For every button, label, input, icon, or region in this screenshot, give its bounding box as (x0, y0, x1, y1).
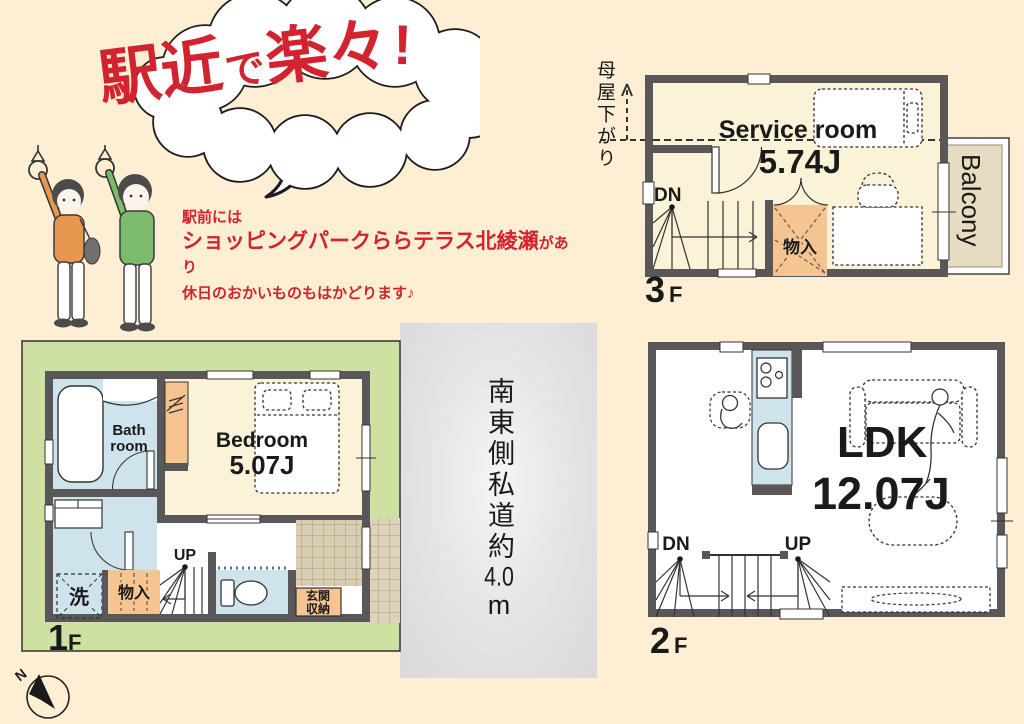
bedroom-closet (165, 382, 188, 471)
strap-handle-icon (99, 149, 111, 159)
floor-label-2f-suffix: F (674, 633, 687, 658)
entrance-storage-label-1: 玄関 (306, 588, 330, 603)
balcony-label: Balcony (956, 154, 986, 247)
bathtub (58, 386, 103, 482)
storage-wall (765, 200, 773, 277)
road-label: 南東側私道約4.0m (485, 377, 512, 624)
stair-wall (645, 145, 712, 153)
room-name-2f: LDK (837, 418, 928, 467)
storage-label-3f: 物入 (783, 237, 817, 257)
people-illustration (8, 145, 193, 345)
entrance-storage-label-2: 収納 (306, 601, 330, 616)
door-leaf (147, 451, 154, 489)
sink (758, 423, 788, 469)
bathroom-label-1: Bath (112, 422, 145, 439)
north-needle-icon (29, 674, 55, 709)
north-label: N (12, 665, 30, 684)
stove (757, 358, 787, 398)
door-leaf (712, 147, 719, 193)
bathroom-label-2: room (110, 438, 148, 455)
floor-label-3f: 3 (645, 269, 665, 305)
woman-figure (29, 145, 100, 328)
toilet-bowl (235, 581, 267, 605)
road-width-unit: m (484, 590, 514, 624)
dn-label-2f: DN (662, 534, 689, 555)
entrance-storage: 玄関 収納 (296, 588, 341, 616)
road-label-text: 南東側私道約 (484, 377, 514, 563)
floorplan-2f: DN UP LDK 12.07J 2 F (640, 337, 1024, 659)
flyer-canvas: 駅近 で 楽々 ! (0, 0, 1024, 724)
title-part-3: 楽々 (262, 15, 393, 92)
floor-label-2f: 2 (650, 620, 670, 659)
title-part-2: で (221, 48, 270, 93)
floor-label-1f-suffix: F (68, 630, 81, 655)
entrance-door (362, 527, 370, 569)
room-size-2f: 12.07J (812, 468, 950, 519)
private-road-area: 南東側私道約4.0m (400, 323, 597, 678)
storage-label-1f: 物入 (118, 583, 150, 602)
up-label-1f: UP (174, 547, 197, 564)
tv-board (842, 587, 990, 612)
desc-line-1: 駅前には (182, 206, 572, 227)
floor-label-3f-suffix: F (669, 282, 682, 305)
stair-post (702, 551, 710, 559)
station-description: 駅前には ショッピングパークららテラス北綾瀬があり 休日のおかいものもはかどりま… (182, 206, 572, 303)
strap-handle-icon (32, 151, 44, 161)
door-leaf (125, 532, 133, 570)
dn-label-3f: DN (654, 185, 681, 206)
title-part-1: 駅近 (96, 35, 227, 112)
shopping-park-name: ショッピングパークららテラス北綾瀬 (182, 230, 539, 253)
up-dot (795, 556, 801, 562)
man-figure (96, 145, 155, 332)
title-part-4: ! (389, 17, 413, 73)
toilet-room (216, 568, 296, 614)
washer-label: 洗 (69, 586, 89, 609)
desc-line-2: 休日のおかいものもはかどります♪ (182, 282, 572, 303)
bedroom-label: Bedroom (216, 429, 308, 452)
dn-dot (677, 556, 683, 562)
toilet-tank (221, 580, 234, 606)
compass: N (12, 663, 88, 723)
room-size-3f: 5.74J (759, 143, 842, 180)
floor-label-1f: 1 (48, 617, 68, 658)
floorplan-1f: Bath room Bedroom 5.07J (15, 337, 415, 665)
floorplan-3f: Balcony DN (588, 55, 1018, 305)
up-dot-1f (182, 564, 188, 570)
road-width-value: 4.0 (484, 563, 514, 590)
room-name-3f: Service room (719, 116, 877, 144)
bedroom-size: 5.07J (229, 450, 294, 480)
up-label-2f: UP (785, 534, 812, 555)
